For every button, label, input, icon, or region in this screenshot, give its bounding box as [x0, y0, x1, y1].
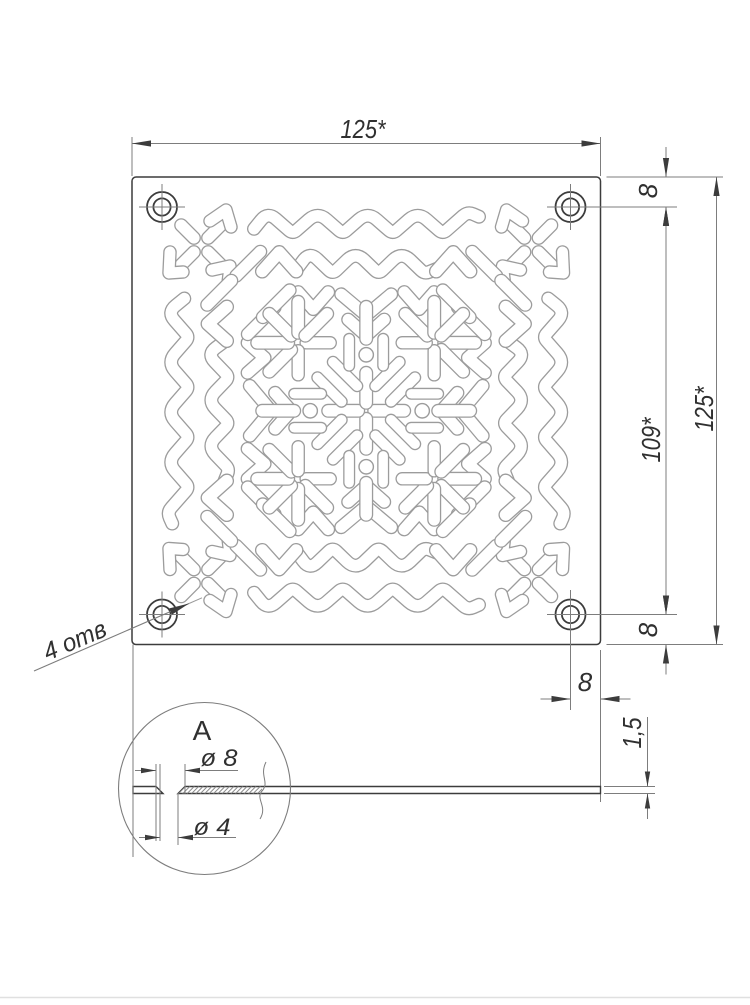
svg-text:8: 8	[633, 622, 663, 637]
svg-text:109*: 109*	[636, 417, 666, 463]
svg-text:ø 4: ø 4	[194, 814, 231, 841]
svg-text:8: 8	[578, 667, 593, 697]
svg-text:125*: 125*	[341, 114, 387, 144]
svg-text:1,5: 1,5	[617, 717, 647, 748]
svg-text:A: A	[193, 715, 212, 746]
svg-text:125*: 125*	[689, 386, 719, 432]
svg-text:8: 8	[633, 183, 663, 198]
svg-text:ø 8: ø 8	[201, 745, 239, 772]
